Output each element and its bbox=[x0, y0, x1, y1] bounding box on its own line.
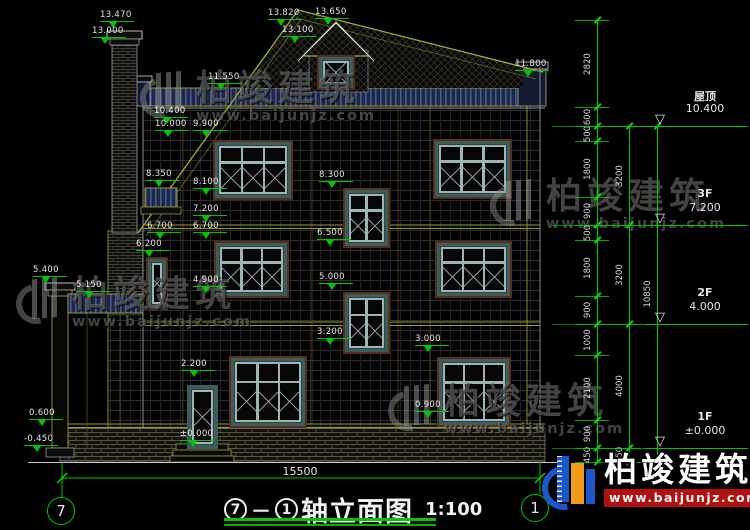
elevation-marker-0.600: 0.600 bbox=[29, 409, 63, 426]
elevation-marker-13.650: 13.650 bbox=[315, 8, 349, 25]
floor-elevation: ±0.000 bbox=[662, 424, 748, 437]
floor-extension-line bbox=[552, 324, 645, 325]
dimension-value: 3200 bbox=[615, 165, 625, 187]
dimension-extension-line bbox=[575, 355, 609, 356]
floor-name: 2F bbox=[662, 286, 748, 299]
title-underline-2 bbox=[224, 524, 436, 526]
elevation-marker-5.000: 5.000 bbox=[319, 273, 353, 290]
elevation-marker-11.550: 11.550 bbox=[208, 73, 242, 90]
brand-logo: 柏竣建筑 www.baijunjz.com bbox=[542, 452, 750, 518]
axis-bubble-7: 7 bbox=[47, 497, 75, 525]
brand-logo-icon bbox=[542, 452, 600, 518]
elevation-marker--0.450: -0.450 bbox=[24, 435, 58, 452]
dimension-extension-line bbox=[575, 107, 609, 108]
floor-elevation: 10.400 bbox=[662, 102, 748, 115]
elevation-marker-11.800: 11.800 bbox=[515, 60, 549, 77]
dimension-value: 900 bbox=[583, 203, 593, 219]
floor-name: 3F bbox=[662, 187, 748, 200]
floor-elevation: 7.200 bbox=[662, 201, 748, 214]
elevation-marker-8.350: 8.350 bbox=[146, 170, 180, 187]
floor-extension-line bbox=[552, 225, 645, 226]
dimension-extension-line bbox=[575, 20, 609, 21]
dimension-value: 10850 bbox=[643, 280, 653, 307]
elevation-marker-6.200: 6.200 bbox=[136, 240, 170, 257]
elevation-marker-4.900: 4.900 bbox=[193, 276, 227, 293]
elevation-marker-13.100: 13.100 bbox=[282, 26, 316, 43]
dimension-value: 2820 bbox=[583, 53, 593, 75]
elevation-marker-6.700: 6.700 bbox=[147, 222, 181, 239]
elevation-marker-13.820: 13.820 bbox=[268, 9, 302, 26]
floor-name: 1F bbox=[662, 410, 748, 423]
floor-extension-line bbox=[552, 448, 645, 449]
elevation-marker-0.900: 0.900 bbox=[415, 401, 449, 418]
elevation-marker-6.700: 6.700 bbox=[193, 222, 227, 239]
dimension-value: 4000 bbox=[615, 375, 625, 397]
dimension-value: 900 bbox=[583, 426, 593, 442]
dimension-chain-line bbox=[657, 126, 658, 462]
title-scale: 1:100 bbox=[425, 499, 482, 520]
brand-name: 柏竣建筑 bbox=[604, 452, 750, 488]
elevation-marker-9.900: 9.900 bbox=[193, 120, 227, 137]
elevation-marker-13.000: 13.000 bbox=[92, 27, 126, 44]
dimension-extension-line bbox=[575, 197, 609, 198]
elevation-marker-6.500: 6.500 bbox=[317, 229, 351, 246]
title-underline bbox=[224, 518, 436, 521]
elevation-marker-8.300: 8.300 bbox=[319, 171, 353, 188]
brand-website: www.baijunjz.com bbox=[604, 489, 750, 507]
elevation-marker-10.000: 10.000 bbox=[155, 120, 189, 137]
dimension-value: 1000 bbox=[583, 329, 593, 351]
elevation-marker-5.150: 5.150 bbox=[76, 281, 110, 298]
elevation-marker-5.400: 5.400 bbox=[33, 266, 67, 283]
dimension-value: 500 bbox=[583, 224, 593, 240]
floor-elevation: 4.000 bbox=[662, 300, 748, 313]
dimension-value: 600 bbox=[583, 108, 593, 124]
overall-width-dimension: 15500 bbox=[268, 465, 332, 478]
floor-extension-line bbox=[552, 126, 645, 127]
dimension-value: 1800 bbox=[583, 158, 593, 180]
dimension-value: 900 bbox=[583, 302, 593, 318]
elevation-marker-8.100: 8.100 bbox=[193, 178, 227, 195]
elevation-marker-7.200: 7.200 bbox=[193, 205, 227, 222]
elevation-marker-±0.000: ±0.000 bbox=[180, 430, 214, 447]
dimension-extension-line bbox=[575, 296, 609, 297]
dimension-value: 1800 bbox=[583, 257, 593, 279]
elevation-marker-3.200: 3.200 bbox=[317, 328, 351, 345]
elevation-marker-3.000: 3.000 bbox=[415, 335, 449, 352]
dimension-value: 3200 bbox=[615, 264, 625, 286]
elevation-drawing-canvas: 13.47013.00013.82013.65013.10011.55011.8… bbox=[0, 0, 750, 530]
dimension-chain-line bbox=[629, 126, 630, 462]
dimension-extension-line bbox=[575, 420, 609, 421]
dimension-value: 2100 bbox=[583, 377, 593, 399]
elevation-marker-2.200: 2.200 bbox=[181, 360, 215, 377]
dimension-value: 500 bbox=[583, 125, 593, 141]
